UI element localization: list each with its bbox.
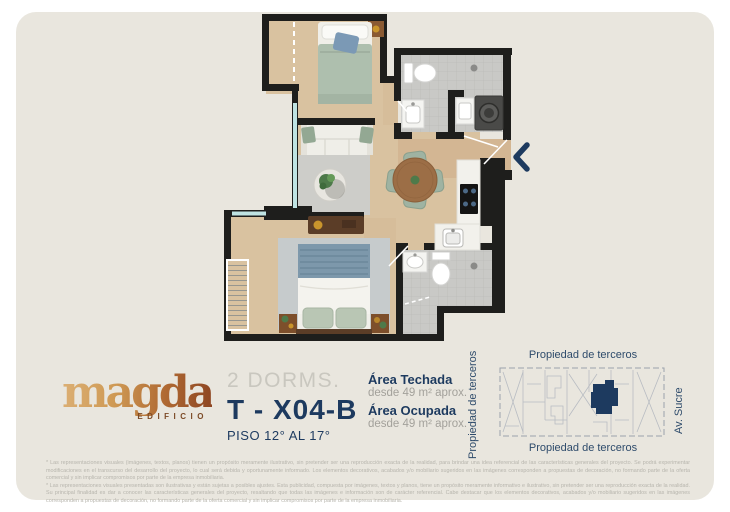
unit-info: 2 DORMS. T - X04-B PISO 12° AL 17° [227,369,377,443]
unit-floors-label: PISO 12° AL 17° [227,428,377,443]
keyplan-unit-highlight [591,380,618,414]
floor-plan [222,8,534,352]
cooktop [460,184,478,214]
keyplan-label-left: Propiedad de terceros [467,341,479,459]
keyplan-label-top: Propiedad de terceros [497,349,669,361]
toilet [432,263,450,285]
unit-code: T - X04-B [227,394,377,426]
shower-drain [471,65,478,72]
disclaimer-paragraph-1: * Las representaciones visuales (imágene… [46,460,690,483]
legal-disclaimer: * Las representaciones visuales (imágene… [46,460,690,505]
brand-name: magda [62,370,212,416]
keyplan-unit-lines [503,370,661,434]
planter-ledge [227,260,248,330]
shower-drain [471,263,478,270]
keyplan-diagram [497,362,669,442]
keyplan-label-right: Av. Sucre [673,374,685,434]
toilet [414,64,436,82]
unit-dorms-label: 2 DORMS. [227,369,377,393]
nightstand [279,314,297,333]
disclaimer-paragraph-2: * Las representaciones visuales presenta… [46,483,690,506]
brand-logo: magda EDIFICIO [62,370,212,421]
entry-chevron-icon [516,145,527,169]
window-glass [232,103,297,216]
keyplan-label-bottom: Propiedad de terceros [497,442,669,454]
